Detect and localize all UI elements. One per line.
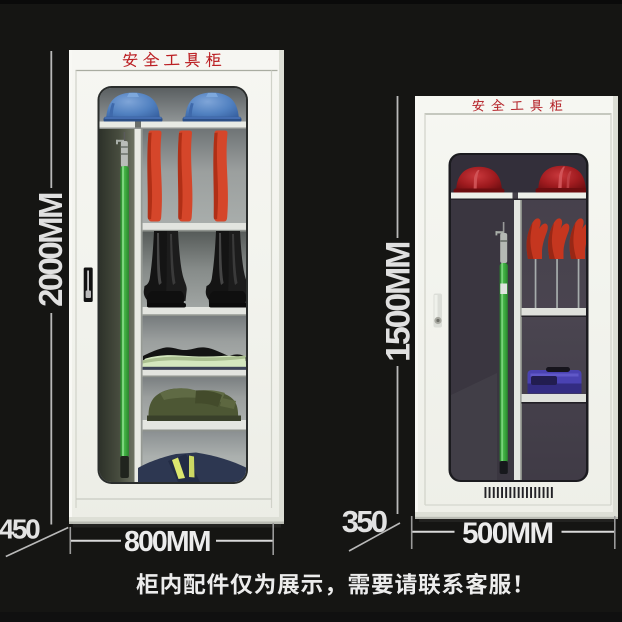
svg-text:450: 450 (0, 514, 40, 545)
svg-text:800MM: 800MM (124, 526, 210, 558)
svg-text:500MM: 500MM (462, 517, 552, 550)
svg-text:350: 350 (342, 504, 387, 539)
svg-text:2000MM: 2000MM (32, 193, 69, 307)
svg-text:1500MM: 1500MM (379, 242, 417, 362)
